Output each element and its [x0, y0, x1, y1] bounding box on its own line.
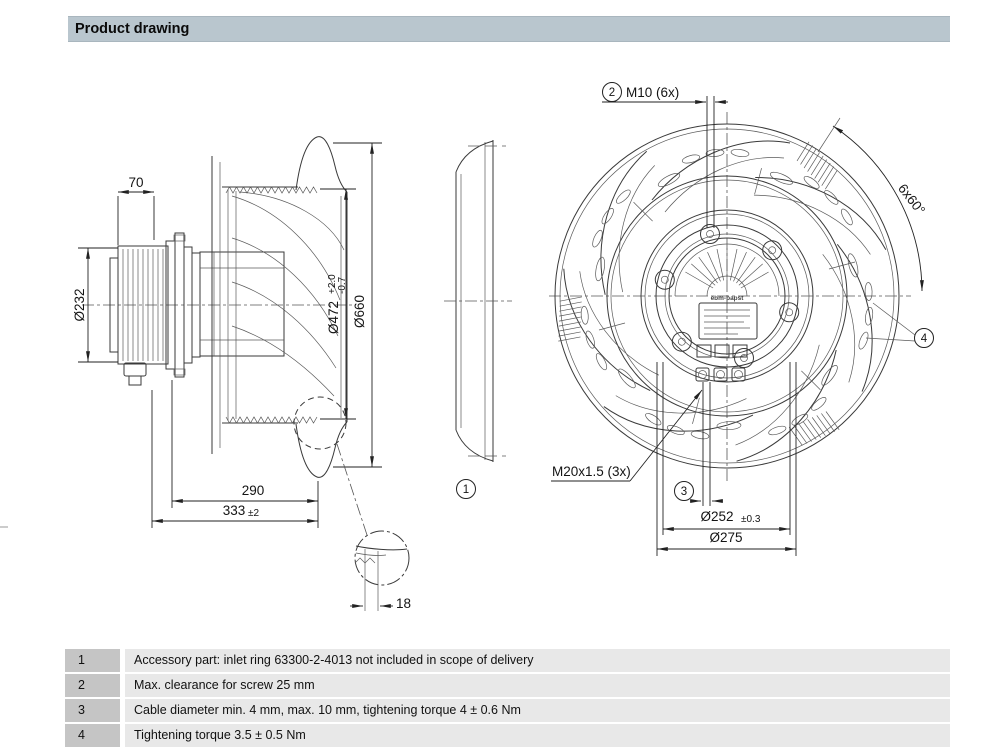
svg-text:Ø275: Ø275 [709, 530, 742, 545]
table-row: 4 Tightening torque 3.5 ± 0.5 Nm [65, 724, 950, 747]
side-view: 70 Ø232 Ø472 +2.0 -0.7 [72, 137, 411, 611]
callout-1: 1 [457, 480, 476, 499]
dim-pitch-circle: Ø275 [657, 362, 796, 556]
nameplate [699, 303, 757, 339]
note-number: 1 [65, 649, 120, 672]
svg-text:18: 18 [396, 596, 411, 611]
detail-view-circle [355, 531, 409, 585]
svg-text:4: 4 [921, 333, 928, 345]
brand-text: ebm-papst [711, 295, 745, 302]
cable-gland-side [124, 363, 146, 385]
inlet-ring-view: 1 [444, 140, 512, 499]
svg-text:2: 2 [609, 87, 615, 99]
svg-text:Ø472 +2.0: Ø472 +2.0 -0.7 [322, 270, 348, 334]
table-row: 3 Cable diameter min. 4 mm, max. 10 mm, … [65, 699, 950, 722]
note-text: Tightening torque 3.5 ± 0.5 Nm [125, 724, 950, 747]
label-m10: 2 M10 (6x) [602, 83, 728, 229]
dim-motor-depth: 70 [118, 175, 154, 245]
dim-depth-overall: 333 ±2 [152, 390, 318, 528]
note-number: 4 [65, 724, 120, 747]
guard-teeth-bottom [226, 417, 317, 423]
dim-bolt-circle: Ø252 ±0.3 [663, 362, 790, 535]
technical-drawing: 70 Ø232 Ø472 +2.0 -0.7 [0, 0, 1000, 755]
note-text: Accessory part: inlet ring 63300-2-4013 … [125, 649, 950, 672]
svg-text:Ø660: Ø660 [352, 295, 367, 328]
svg-text:70: 70 [128, 175, 143, 190]
bell-mouth-bottom [296, 422, 347, 477]
svg-text:M10 (6x): M10 (6x) [626, 85, 679, 100]
impeller-hub [200, 252, 284, 356]
svg-text:Ø252: Ø252 [700, 509, 733, 524]
svg-text:6x60°: 6x60° [895, 181, 928, 218]
svg-text:±0.3: ±0.3 [741, 514, 761, 525]
bell-mouth-top [296, 137, 347, 192]
svg-text:±2: ±2 [248, 508, 259, 519]
svg-text:333: 333 [223, 503, 246, 518]
table-row: 2 Max. clearance for screw 25 mm [65, 674, 950, 697]
guard-teeth-top [226, 187, 317, 193]
svg-text:Ø232: Ø232 [72, 288, 87, 321]
note-text: Max. clearance for screw 25 mm [125, 674, 950, 697]
detail-callout: 18 [294, 397, 411, 611]
table-row: 1 Accessory part: inlet ring 63300-2-401… [65, 649, 950, 672]
svg-text:M20x1.5 (3x): M20x1.5 (3x) [552, 464, 631, 479]
callout-4: 4 [866, 303, 934, 348]
svg-text:290: 290 [242, 483, 265, 498]
note-number: 3 [65, 699, 120, 722]
terminal-blocks [697, 345, 747, 357]
note-number: 2 [65, 674, 120, 697]
dim-impeller-diameter: Ø472 +2.0 -0.7 [320, 189, 356, 419]
svg-text:3: 3 [681, 486, 687, 498]
note-text: Cable diameter min. 4 mm, max. 10 mm, ti… [125, 699, 950, 722]
back-view: ebm-papst [549, 83, 934, 557]
product-drawing-page: Product drawing [0, 0, 1000, 755]
svg-text:1: 1 [463, 484, 469, 496]
dim-inlet-ring: 18 [350, 596, 411, 611]
dim-depth-housing: 290 [172, 380, 318, 508]
